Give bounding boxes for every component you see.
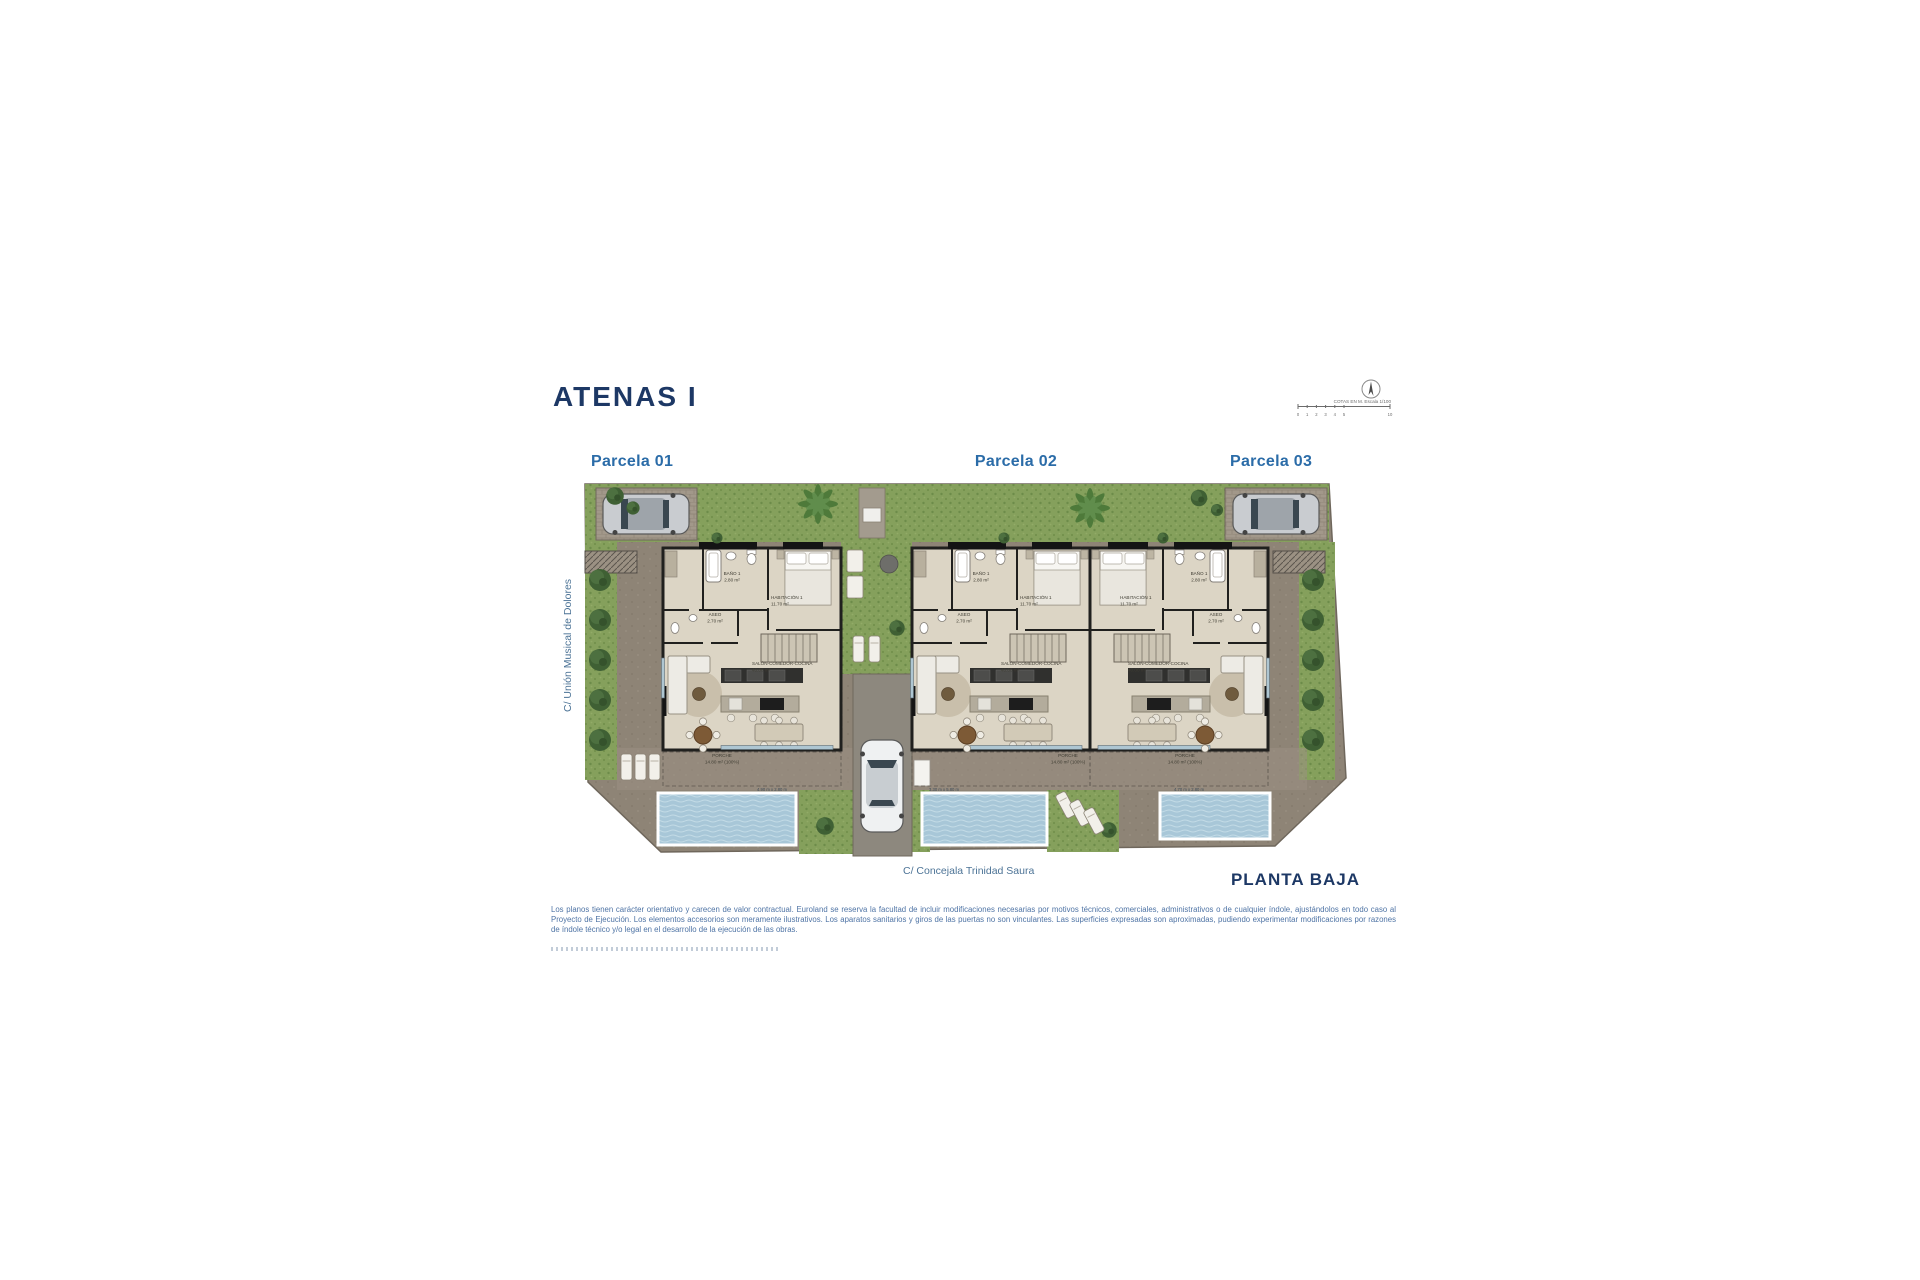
- scale-bar-and-compass: COTAS EN M. Escala 1/100 0 1 2 3 4 5 10: [1278, 372, 1408, 427]
- svg-text:40.00 m²: 40.00 m²: [1128, 668, 1147, 673]
- svg-text:PORCHE: PORCHE: [1058, 753, 1078, 758]
- pools: [658, 793, 1270, 845]
- svg-text:10: 10: [1388, 412, 1393, 417]
- svg-text:SALÓN-COMEDOR-COCINA: SALÓN-COMEDOR-COCINA: [1001, 660, 1062, 666]
- svg-text:40.00 m²: 40.00 m²: [1001, 668, 1020, 673]
- utility-box: [914, 760, 930, 786]
- svg-text:2.70 m²: 2.70 m²: [707, 619, 723, 624]
- svg-text:1: 1: [1306, 412, 1309, 417]
- svg-text:2.80 m²: 2.80 m²: [973, 578, 989, 583]
- svg-text:PORCHE: PORCHE: [1175, 753, 1195, 758]
- svg-text:14.80 m² (100%): 14.80 m² (100%): [1168, 760, 1203, 765]
- pool-parcela-02: [922, 793, 1047, 845]
- car-driveway: [860, 740, 904, 832]
- svg-text:4: 4: [1334, 412, 1337, 417]
- parcel-label-02: Parcela 02: [916, 453, 1116, 471]
- svg-text:40.00 m²: 40.00 m²: [752, 668, 771, 673]
- svg-text:2.70 m²: 2.70 m²: [956, 619, 972, 624]
- project-title: ATENAS I: [553, 381, 698, 413]
- svg-text:ASEO: ASEO: [1210, 612, 1223, 617]
- svg-text:SALÓN-COMEDOR-COCINA: SALÓN-COMEDOR-COCINA: [752, 660, 813, 666]
- utility-pad: [859, 488, 885, 538]
- svg-text:HABITACIÓN 1: HABITACIÓN 1: [1120, 594, 1152, 600]
- svg-text:4.70 m x 2.80 m: 4.70 m x 2.80 m: [1174, 787, 1205, 792]
- svg-text:BAÑO 1: BAÑO 1: [973, 570, 990, 576]
- entry-steps-right: [1273, 551, 1325, 573]
- palm-tree-icon: [1070, 488, 1110, 528]
- entry-steps-left: [585, 551, 637, 573]
- svg-text:HABITACIÓN 1: HABITACIÓN 1: [771, 594, 803, 600]
- parking-right: [1225, 488, 1327, 540]
- svg-text:3: 3: [1324, 412, 1327, 417]
- svg-text:ASEO: ASEO: [958, 612, 971, 617]
- svg-text:ASEO: ASEO: [709, 612, 722, 617]
- central-driveway: [853, 674, 912, 856]
- parcel-label-03: Parcela 03: [1230, 453, 1312, 471]
- svg-text:0: 0: [1297, 412, 1300, 417]
- palm-tree-icon: [798, 484, 838, 524]
- svg-text:2.70 m²: 2.70 m²: [1208, 619, 1224, 624]
- pool-parcela-01: [658, 793, 796, 845]
- house-parcela-03: [1090, 542, 1270, 750]
- site-plan: BAÑO 1 2.80 m² ASEO 2.70 m² HABITACIÓN 1…: [557, 478, 1390, 868]
- svg-text:2.80 m²: 2.80 m²: [724, 578, 740, 583]
- floor-name: PLANTA BAJA: [1160, 870, 1360, 890]
- svg-text:PORCHE: PORCHE: [712, 753, 732, 758]
- svg-text:11.70 m²: 11.70 m²: [1020, 602, 1038, 607]
- house-parcela-01: [662, 542, 842, 750]
- svg-text:SALÓN-COMEDOR-COCINA: SALÓN-COMEDOR-COCINA: [1128, 660, 1189, 666]
- svg-text:11.70 m²: 11.70 m²: [771, 602, 789, 607]
- scale-tick-labels: 0 1 2 3 4 5 10: [1297, 412, 1393, 417]
- svg-text:11.70 m²: 11.70 m²: [1120, 602, 1138, 607]
- svg-text:5: 5: [1343, 412, 1346, 417]
- svg-text:2: 2: [1315, 412, 1318, 417]
- svg-text:2.80 m²: 2.80 m²: [1191, 578, 1207, 583]
- svg-text:3.30 m x 5.80 m: 3.30 m x 5.80 m: [929, 787, 960, 792]
- svg-text:4.90 m x 2.80 m: 4.90 m x 2.80 m: [757, 787, 788, 792]
- street-label-bottom: C/ Concejala Trinidad Saura: [903, 865, 1034, 877]
- svg-text:BAÑO 1: BAÑO 1: [1191, 570, 1208, 576]
- legal-disclaimer: Los planos tienen carácter orientativo y…: [551, 905, 1396, 936]
- pool-parcela-03: [1160, 793, 1270, 839]
- svg-text:14.80 m² (100%): 14.80 m² (100%): [1051, 760, 1086, 765]
- svg-text:HABITACIÓN 1: HABITACIÓN 1: [1020, 594, 1052, 600]
- svg-text:14.80 m² (100%): 14.80 m² (100%): [705, 760, 740, 765]
- clipped-text-remnant: [551, 947, 779, 951]
- house-parcela-02: [911, 542, 1091, 750]
- car-white: [1233, 493, 1319, 535]
- scale-bar: [1298, 404, 1390, 409]
- scale-text: COTAS EN M. Escala 1/100: [1334, 399, 1392, 404]
- parcel-label-01: Parcela 01: [591, 453, 673, 471]
- svg-text:BAÑO 1: BAÑO 1: [724, 570, 741, 576]
- north-compass-icon: [1362, 380, 1380, 398]
- street-label-left: C/ Unión Musical de Dolores: [562, 579, 574, 712]
